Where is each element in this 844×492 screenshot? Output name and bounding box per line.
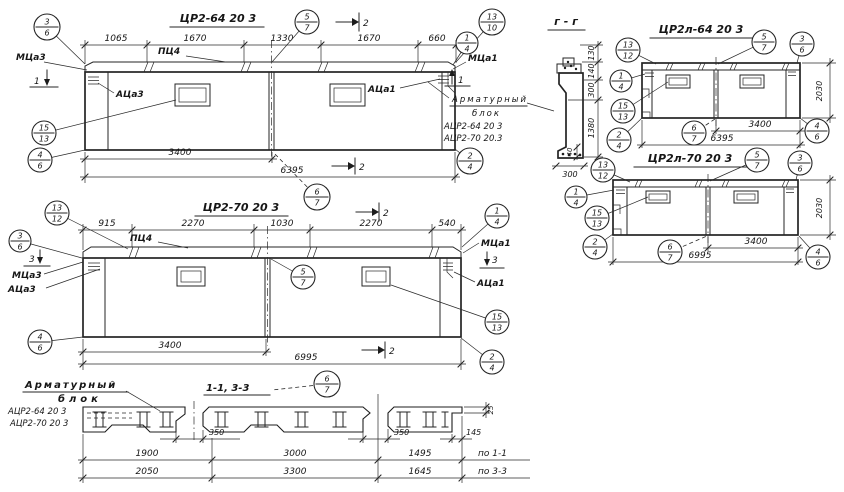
label-aca1: АЦа1 bbox=[367, 85, 396, 95]
callout-top-number: 3 bbox=[17, 232, 22, 241]
section-title: г - г bbox=[554, 15, 579, 28]
callout-1-4: 14 bbox=[610, 70, 645, 92]
dim-bottom: 3400 6395 bbox=[637, 120, 805, 148]
callout-bottom-number: 4 bbox=[467, 163, 472, 172]
callout-bottom-number: 4 bbox=[616, 142, 621, 151]
callout-bottom-number: 12 bbox=[52, 215, 62, 224]
svg-text:1495: 1495 bbox=[409, 449, 432, 459]
callout-bottom-number: 4 bbox=[618, 83, 623, 92]
callout-3-6: 36 bbox=[9, 230, 82, 258]
callout-5-7: 57 bbox=[271, 259, 315, 289]
panel-body bbox=[642, 63, 800, 118]
svg-text:3400: 3400 bbox=[749, 120, 772, 130]
callout-top-number: 6 bbox=[667, 243, 672, 252]
svg-text:2030: 2030 bbox=[815, 198, 824, 218]
view-cr2-70: ЦР2-70 20 3 915 2270 1030 2270 540 2 bbox=[7, 201, 511, 370]
dim-height: 2030 bbox=[800, 175, 836, 240]
svg-text:1645: 1645 bbox=[409, 467, 432, 477]
callout-15-13: 1513 bbox=[585, 197, 648, 230]
svg-text:6995: 6995 bbox=[295, 353, 318, 363]
svg-text:2: 2 bbox=[383, 209, 389, 219]
callout-top-number: 1 bbox=[464, 34, 469, 43]
svg-text:145: 145 bbox=[466, 428, 481, 437]
callout-bottom-number: 4 bbox=[494, 218, 499, 227]
note-line1: Арматурный bbox=[451, 95, 528, 105]
panel-body bbox=[85, 40, 455, 160]
callout-top-number: 15 bbox=[592, 209, 602, 218]
callout-top-number: 5 bbox=[300, 268, 305, 277]
callout-6-7: 67 bbox=[273, 152, 330, 210]
callout-4-6: 46 bbox=[799, 236, 830, 269]
callout-top-number: 15 bbox=[39, 124, 49, 133]
callout-top-number: 13 bbox=[52, 204, 62, 213]
svg-text:140: 140 bbox=[587, 63, 596, 78]
callout-bottom-number: 6 bbox=[797, 165, 802, 174]
callout-bottom-number: 13 bbox=[492, 324, 502, 333]
svg-text:3: 3 bbox=[492, 256, 498, 266]
drawing-canvas: ЦР2-64 20 3 1065 1670 1330 1670 660 2 bbox=[0, 0, 844, 492]
dim-text: 1065 bbox=[105, 34, 128, 44]
callout-top-number: 1 bbox=[618, 72, 623, 81]
svg-text:300: 300 bbox=[562, 170, 577, 179]
callout-4-6: 46 bbox=[800, 118, 829, 143]
callout-bottom-number: 13 bbox=[39, 135, 49, 144]
callout-top-number: 4 bbox=[37, 333, 42, 342]
callout-top-number: 2 bbox=[489, 353, 494, 362]
callout-top-number: 4 bbox=[37, 151, 42, 160]
note-item2: АЦР2-70 20.3 bbox=[443, 134, 502, 144]
callout-bottom-number: 6 bbox=[44, 29, 49, 38]
window-opening bbox=[175, 84, 210, 106]
note-line1: Арматурный bbox=[24, 380, 117, 391]
callout-1-4: 14 bbox=[565, 186, 614, 208]
callout-2-4: 24 bbox=[461, 338, 504, 374]
svg-text:2050: 2050 bbox=[136, 467, 159, 477]
svg-text:540: 540 bbox=[438, 219, 455, 229]
dim-chain-right: 130 140 300 1380 40 bbox=[566, 41, 603, 160]
callout-top-number: 2 bbox=[616, 131, 621, 140]
dim-height: 2030 bbox=[802, 58, 836, 123]
callout-15-13: 1513 bbox=[32, 100, 176, 145]
svg-text:25: 25 bbox=[487, 405, 495, 414]
label-aca3: АЦа3 bbox=[7, 285, 36, 295]
note-line2: блок bbox=[472, 109, 501, 119]
svg-text:40: 40 bbox=[566, 147, 574, 156]
callout-3-6: 36 bbox=[790, 32, 814, 63]
section-mark-2-top: 2 bbox=[336, 13, 369, 31]
window-opening bbox=[666, 75, 690, 88]
callout-bottom-number: 6 bbox=[814, 133, 819, 142]
callout-top-number: 6 bbox=[324, 375, 329, 384]
section-mark-1-left: 1 bbox=[30, 70, 58, 87]
callout-6-7: 67 bbox=[272, 371, 340, 397]
callout-4-6: 46 bbox=[28, 330, 83, 354]
callout-top-number: 5 bbox=[304, 13, 309, 22]
view-title: ЦР2л-70 20 3 bbox=[648, 152, 733, 165]
drawing-sheet: ЦР2-64 20 3 1065 1670 1330 1670 660 2 bbox=[0, 0, 844, 492]
svg-text:2: 2 bbox=[389, 347, 395, 357]
callout-top-number: 6 bbox=[691, 124, 696, 133]
callout-4-6: 46 bbox=[28, 148, 85, 172]
section-mark-2-bottom: 2 bbox=[332, 158, 365, 174]
svg-text:1380: 1380 bbox=[587, 118, 596, 138]
dim-text: 1330 bbox=[271, 34, 294, 44]
svg-text:1: 1 bbox=[34, 77, 40, 87]
svg-text:1900: 1900 bbox=[136, 449, 159, 459]
svg-text:3400: 3400 bbox=[745, 237, 768, 247]
dim-text: 1670 bbox=[184, 34, 207, 44]
section-g-g: г - г 130 140 300 1380 40 bbox=[548, 15, 603, 179]
section-mark-3-left: 3 bbox=[24, 250, 50, 266]
view-title: ЦР2-64 20 3 bbox=[180, 12, 257, 25]
note-item1: АЦР2-64 20 3 bbox=[443, 122, 502, 132]
svg-text:130: 130 bbox=[587, 45, 596, 60]
note-armature-block-right: Арматурный блок АЦР2-64 20 3 АЦР2-70 20.… bbox=[428, 82, 554, 144]
window-opening bbox=[740, 75, 764, 88]
callout-bottom-number: 4 bbox=[489, 364, 494, 373]
svg-text:1030: 1030 bbox=[271, 219, 294, 229]
callout-top-number: 13 bbox=[487, 13, 497, 22]
label-mca3: МЦа3 bbox=[16, 53, 46, 63]
callout-top-number: 5 bbox=[754, 151, 759, 160]
callout-bottom-number: 13 bbox=[592, 220, 602, 229]
svg-text:350: 350 bbox=[209, 428, 224, 437]
callout-bottom-number: 4 bbox=[573, 199, 578, 208]
label-pc4: ПЦ4 bbox=[130, 234, 152, 244]
dim-chain-top: 1065 1670 1330 1670 660 bbox=[80, 34, 461, 64]
callout-bottom-number: 6 bbox=[799, 46, 804, 55]
label-mca1: МЦа1 bbox=[468, 54, 498, 64]
svg-text:2270: 2270 bbox=[182, 219, 205, 229]
svg-text:по 3-3: по 3-3 bbox=[478, 467, 507, 477]
svg-text:3300: 3300 bbox=[284, 467, 307, 477]
callout-top-number: 6 bbox=[314, 188, 319, 197]
callout-leader bbox=[44, 100, 176, 133]
dim-text: 1670 bbox=[358, 34, 381, 44]
section-mark-2-bottom: 2 bbox=[362, 342, 395, 358]
svg-text:350: 350 bbox=[394, 428, 409, 437]
callout-bottom-number: 10 bbox=[487, 24, 497, 33]
section-title: 1-1, 3-3 bbox=[206, 383, 249, 394]
svg-text:3: 3 bbox=[29, 255, 35, 265]
callout-top-number: 1 bbox=[494, 207, 499, 216]
callout-leader bbox=[391, 285, 497, 322]
callout-bottom-number: 12 bbox=[623, 52, 633, 61]
dim-bottom: 3400 6395 2 bbox=[80, 148, 460, 183]
label-aca1: АЦа1 bbox=[476, 279, 505, 289]
panel-body bbox=[83, 226, 461, 346]
callout-13-12: 1312 bbox=[591, 158, 630, 182]
svg-text:6395: 6395 bbox=[711, 134, 734, 144]
callout-bottom-number: 4 bbox=[592, 249, 597, 258]
callout-top-number: 13 bbox=[598, 161, 608, 170]
svg-text:6995: 6995 bbox=[689, 251, 712, 261]
svg-text:по 1-1: по 1-1 bbox=[478, 449, 507, 459]
label-aca3: АЦа3 bbox=[115, 90, 144, 100]
dim-text: 660 bbox=[428, 34, 445, 44]
callout-top-number: 2 bbox=[592, 238, 597, 247]
window-opening bbox=[734, 191, 758, 203]
callout-top-number: 4 bbox=[814, 122, 819, 131]
svg-text:1: 1 bbox=[458, 76, 464, 86]
callout-bottom-number: 12 bbox=[598, 172, 608, 181]
dim-bottom: 3400 2 6995 bbox=[78, 339, 466, 370]
label-mca3: МЦа3 bbox=[12, 271, 42, 281]
callout-bottom-number: 4 bbox=[464, 45, 469, 54]
dim-base: 300 bbox=[552, 163, 588, 179]
note-line2: блок bbox=[58, 393, 102, 405]
callout-top-number: 15 bbox=[492, 313, 502, 322]
svg-text:3400: 3400 bbox=[169, 148, 192, 158]
note-item1: АЦР2-64 20 3 bbox=[7, 407, 66, 417]
callout-top-number: 2 bbox=[467, 152, 472, 161]
coping-row bbox=[85, 62, 455, 72]
callout-bottom-number: 6 bbox=[815, 259, 820, 268]
view-cr2-64: ЦР2-64 20 3 1065 1670 1330 1670 660 2 bbox=[16, 12, 498, 183]
callout-layer: 3657131014151346246713121415132457364667… bbox=[9, 9, 830, 397]
window-opening bbox=[646, 191, 670, 203]
callout-bottom-number: 6 bbox=[37, 344, 42, 353]
section-mark-3-right: 3 bbox=[480, 252, 504, 268]
callout-top-number: 15 bbox=[618, 102, 628, 111]
callout-2-4: 24 bbox=[583, 234, 613, 259]
svg-text:2: 2 bbox=[359, 163, 365, 173]
svg-text:300: 300 bbox=[587, 82, 596, 97]
callout-top-number: 5 bbox=[761, 33, 766, 42]
coping-row bbox=[83, 247, 461, 258]
callout-top-number: 13 bbox=[623, 41, 633, 50]
section-profile bbox=[557, 58, 583, 158]
callout-top-number: 3 bbox=[797, 154, 802, 163]
callout-bottom-number: 6 bbox=[17, 243, 22, 252]
callout-top-number: 1 bbox=[573, 188, 578, 197]
callout-top-number: 3 bbox=[44, 18, 49, 27]
callout-3-6: 36 bbox=[788, 151, 812, 180]
callout-15-13: 1513 bbox=[391, 285, 509, 334]
label-pc4: ПЦ4 bbox=[158, 47, 180, 57]
svg-text:2: 2 bbox=[363, 19, 369, 29]
callout-2-4: 24 bbox=[455, 148, 483, 174]
note-item2: АЦР2-70 20 3 bbox=[9, 419, 68, 429]
svg-text:915: 915 bbox=[98, 219, 115, 229]
svg-text:3000: 3000 bbox=[284, 449, 307, 459]
callout-bottom-number: 6 bbox=[37, 162, 42, 171]
dim-bottom: 3400 6995 bbox=[608, 237, 803, 265]
section-1-1-3-3: 1-1, 3-3 350 350 bbox=[78, 383, 530, 483]
view-title: ЦР2л-64 20 3 bbox=[659, 23, 744, 36]
view-title: ЦР2-70 20 3 bbox=[203, 201, 280, 214]
label-mca1: МЦа1 bbox=[481, 239, 511, 249]
callout-top-number: 3 bbox=[799, 35, 804, 44]
window-opening bbox=[330, 84, 365, 106]
callout-13-12: 1312 bbox=[616, 38, 656, 64]
callout-bottom-number: 13 bbox=[618, 113, 628, 122]
svg-text:3400: 3400 bbox=[159, 341, 182, 351]
callout-top-number: 4 bbox=[815, 248, 820, 257]
svg-text:2030: 2030 bbox=[815, 81, 824, 101]
